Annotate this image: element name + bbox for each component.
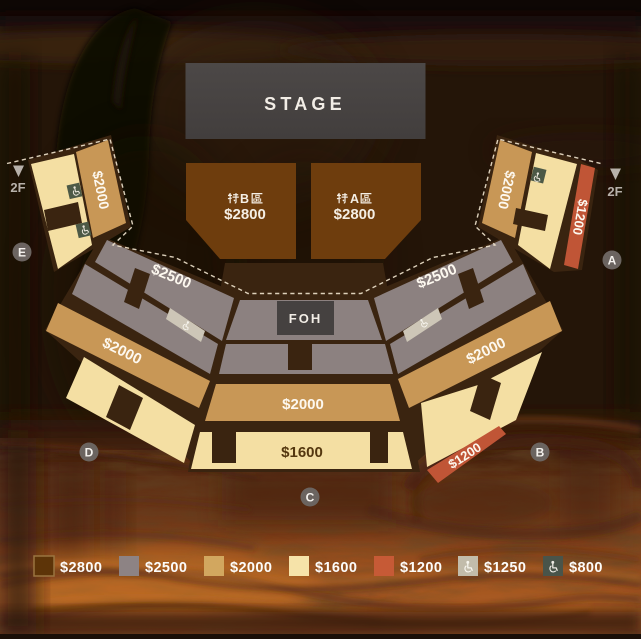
svg-text:$2800: $2800 bbox=[60, 560, 102, 576]
svg-text:$1600: $1600 bbox=[281, 444, 323, 461]
svg-text:$2500: $2500 bbox=[145, 560, 187, 576]
svg-text:$800: $800 bbox=[569, 560, 603, 576]
svg-text:A: A bbox=[350, 192, 359, 206]
svg-text:$2000: $2000 bbox=[230, 560, 272, 576]
svg-text:C: C bbox=[306, 491, 315, 505]
svg-text:FOH: FOH bbox=[289, 311, 322, 326]
svg-text:B: B bbox=[536, 446, 545, 460]
svg-text:STAGE: STAGE bbox=[264, 94, 346, 114]
svg-text:$2000: $2000 bbox=[282, 396, 324, 413]
svg-text:$2800: $2800 bbox=[224, 206, 266, 223]
svg-text:$2800: $2800 bbox=[334, 206, 376, 223]
svg-text:$1600: $1600 bbox=[315, 560, 357, 576]
svg-text:E: E bbox=[18, 246, 26, 260]
svg-text:D: D bbox=[85, 446, 94, 460]
svg-text:$1200: $1200 bbox=[400, 560, 442, 576]
svg-text:A: A bbox=[608, 254, 617, 268]
svg-text:$1250: $1250 bbox=[484, 560, 526, 576]
svg-text:2F: 2F bbox=[10, 180, 25, 195]
svg-text:2F: 2F bbox=[607, 184, 622, 199]
svg-text:B: B bbox=[240, 192, 249, 206]
